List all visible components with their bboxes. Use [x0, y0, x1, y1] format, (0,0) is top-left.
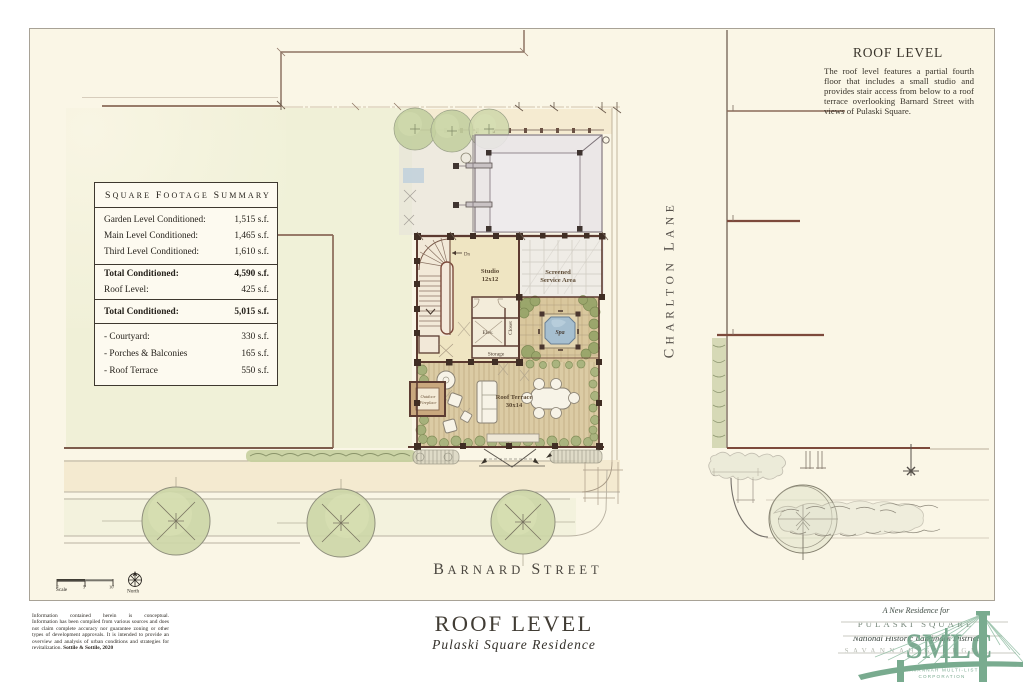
svg-text:10': 10': [109, 585, 114, 590]
svg-text:Outdoor: Outdoor: [421, 394, 436, 399]
svg-text:Fireplace: Fireplace: [419, 400, 437, 405]
svg-text:Roof Terrace: Roof Terrace: [496, 394, 533, 401]
svg-text:CORPORATION: CORPORATION: [918, 674, 965, 679]
svg-text:Screened: Screened: [545, 269, 571, 276]
svg-text:Storage: Storage: [488, 352, 505, 358]
svg-text:Service Area: Service Area: [540, 277, 576, 284]
svg-text:12x12: 12x12: [482, 276, 499, 283]
svg-text:North: North: [127, 589, 140, 595]
svg-text:Elev.: Elev.: [483, 330, 494, 336]
svg-text:Spa: Spa: [555, 330, 564, 336]
svg-text:Studio: Studio: [481, 268, 500, 275]
svg-text:5': 5': [83, 585, 86, 590]
svg-text:Closet: Closet: [508, 321, 514, 335]
svg-text:0': 0': [56, 585, 59, 590]
svg-text:30x14: 30x14: [506, 402, 523, 409]
svg-text:Dn: Dn: [464, 253, 470, 258]
svg-text:SAVANNAH MULTI-LIST: SAVANNAH MULTI-LIST: [905, 668, 978, 673]
